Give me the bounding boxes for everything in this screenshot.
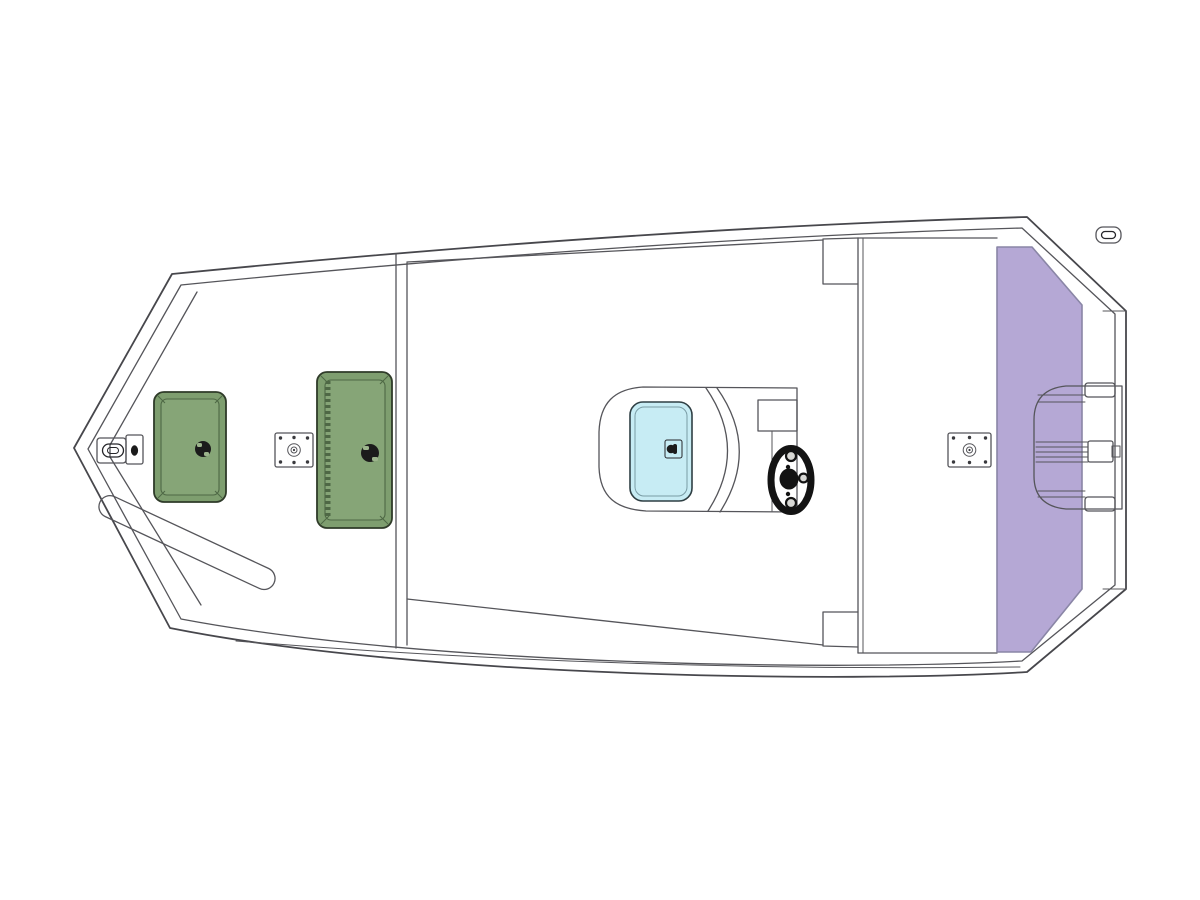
rear-platform [997,247,1082,652]
wheel-dot-top [786,465,790,469]
wheel-knob [799,474,808,483]
wheel-spoke-bottom [786,498,796,508]
wheel-hub [780,469,799,490]
wheel-spoke-top [786,451,796,461]
midship-storage-hatch [317,372,392,528]
wheel-dot-bottom [786,492,790,496]
boat-floorplan-canvas [0,0,1200,900]
hatch-latch-notch [372,457,378,461]
bow-eye-hole [131,445,138,455]
hatch-latch-notch [204,452,209,456]
bow-storage-hatch [154,392,226,502]
hatch-latch-notch [363,446,369,450]
console-windshield [630,402,692,501]
hatch-latch-notch [197,443,202,447]
